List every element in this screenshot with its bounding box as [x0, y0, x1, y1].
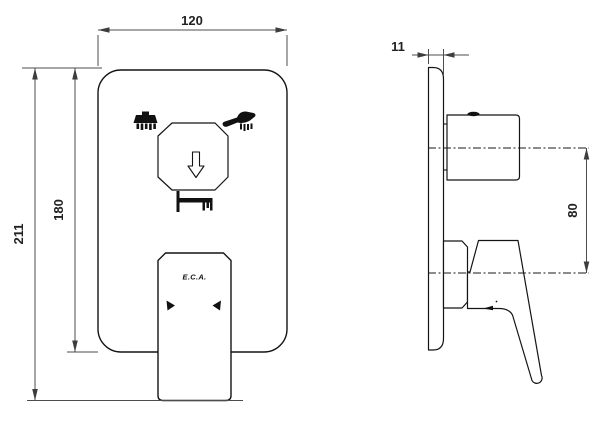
dim-label-plate-height: 180 — [51, 199, 66, 221]
arrow-down-icon — [72, 341, 78, 353]
lever-dot-mark — [496, 301, 498, 303]
arrow-up-icon — [72, 68, 78, 80]
handle-base-side — [444, 241, 468, 308]
arrow-left-icon — [444, 52, 455, 57]
knob-top-tab-icon — [468, 112, 480, 116]
front-view: E.C.A. — [98, 70, 287, 401]
arrow-right-icon — [418, 52, 429, 57]
dim-label-center-distance: 80 — [565, 203, 580, 217]
side-plate-profile — [429, 68, 444, 351]
dim-label-depth: 11 — [391, 39, 405, 54]
technical-drawing-canvas: E.C.A. 120 211 180 — [0, 0, 604, 422]
arrow-right-icon — [276, 27, 288, 33]
arrow-down-icon — [32, 389, 38, 401]
mixer-dimension-drawing: E.C.A. 120 211 180 — [0, 0, 604, 422]
dim-label-total-height: 211 — [11, 224, 26, 245]
handle-lever-side — [468, 241, 543, 384]
arrow-left-icon — [98, 27, 110, 33]
arrow-up-icon — [32, 68, 38, 80]
brand-logo: E.C.A. — [183, 273, 207, 282]
side-view — [428, 68, 589, 384]
dim-label-width: 120 — [181, 13, 203, 28]
arrow-up-icon — [584, 148, 590, 160]
arrow-down-icon — [584, 262, 590, 274]
